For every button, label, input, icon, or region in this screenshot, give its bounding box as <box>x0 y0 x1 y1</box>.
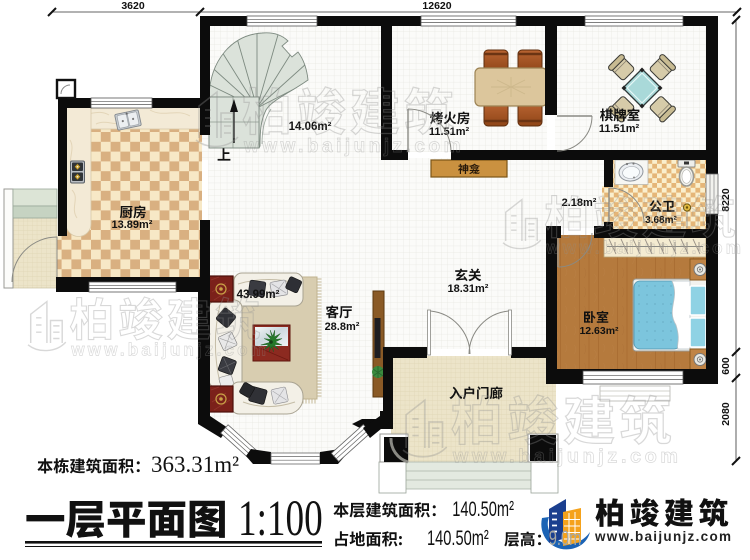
svg-text:43.99m²: 43.99m² <box>237 289 280 301</box>
svg-text:3620: 3620 <box>121 0 145 12</box>
svg-text:12620: 12620 <box>422 0 451 12</box>
svg-text:2.18m²: 2.18m² <box>562 197 597 209</box>
svg-text:140.50m²: 140.50m² <box>452 496 514 521</box>
svg-text:11.51m²: 11.51m² <box>599 123 640 135</box>
svg-text:www.baijunjz.com: www.baijunjz.com <box>594 529 732 544</box>
svg-text:3.68m²: 3.68m² <box>645 215 677 226</box>
svg-text:28.8m²: 28.8m² <box>325 321 360 333</box>
svg-text:363.31m²: 363.31m² <box>151 452 239 477</box>
svg-text:140.50m²: 140.50m² <box>427 525 489 550</box>
svg-text:18.31m²: 18.31m² <box>448 283 489 295</box>
svg-text:600: 600 <box>720 357 732 375</box>
svg-text:12.63m²: 12.63m² <box>579 325 619 337</box>
svg-text:9.0m: 9.0m <box>549 525 581 550</box>
svg-text:2080: 2080 <box>720 402 732 426</box>
svg-text:13.89m²: 13.89m² <box>112 219 153 231</box>
svg-text:1:100: 1:100 <box>238 489 323 546</box>
